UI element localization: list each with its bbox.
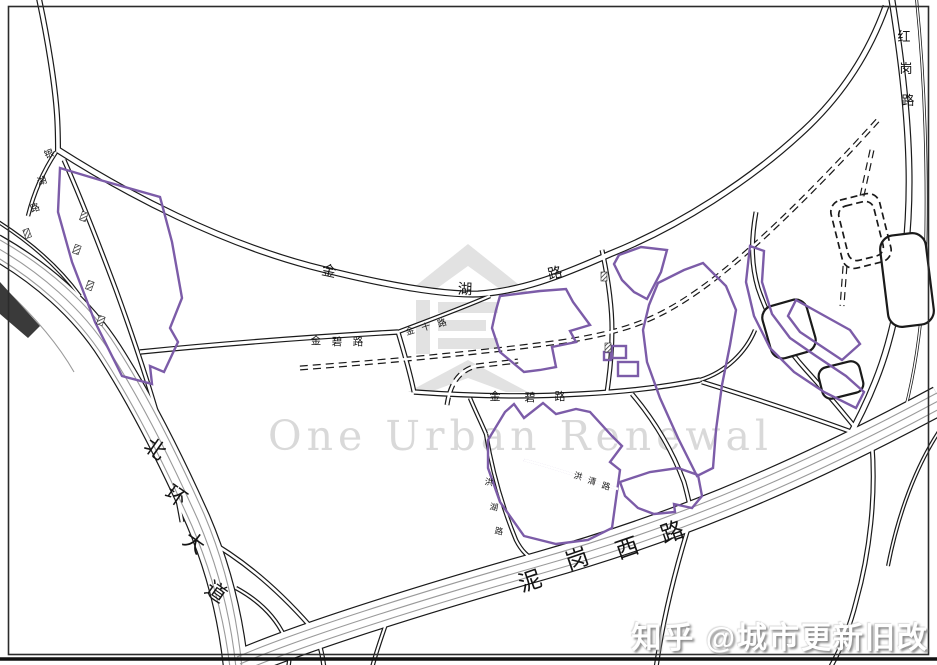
- road-label-jinhu: 金: [320, 262, 338, 282]
- ramp-gore-wedge: [0, 282, 40, 338]
- road-label-yinhu: 湖: [36, 175, 48, 188]
- road-label-hongqing: 清: [587, 475, 598, 487]
- parcel-center-zigzag: [492, 289, 590, 372]
- road-label-jinhu: 湖: [457, 281, 472, 298]
- parcel-small-square: [604, 352, 611, 360]
- road-label-honghu: 湖: [489, 501, 499, 512]
- hatch-tick: [72, 244, 81, 255]
- zhihu-watermark-credit: 知乎 @城市更新旧改: [631, 613, 929, 657]
- road-topleft-vertical: [38, 0, 58, 152]
- planned-road-stub-up: [862, 150, 872, 196]
- road-label-hongqing: 洪: [573, 470, 584, 482]
- parcel-bottom-right: [620, 468, 702, 514]
- map-canvas: One Urban Renewal: [0, 0, 937, 665]
- road-label-jinbi-east: 路: [555, 390, 566, 403]
- house-icon: [438, 338, 498, 349]
- planned-parcel-dashed-inner: [837, 199, 885, 262]
- hatch-tick: [601, 272, 607, 281]
- road-label-honggang: 岗: [899, 61, 912, 76]
- watermark-brand-text: One Urban Renewal: [268, 412, 773, 460]
- road-jinbi-connector: [398, 332, 414, 392]
- hatch-tick: [605, 343, 611, 352]
- road-label-honghu: 洪: [484, 476, 495, 487]
- hatch-tick: [85, 280, 94, 291]
- road-label-honghu: 路: [494, 525, 505, 536]
- parcel-small-square: [612, 346, 626, 358]
- hatch-tick: [23, 228, 32, 239]
- house-icon: [408, 360, 528, 392]
- road-beihuan-avenue: [0, 246, 236, 665]
- road-label-jinbi-west: 路: [353, 335, 364, 348]
- parcel-top-center: [614, 247, 667, 299]
- parcel-small-square: [618, 362, 638, 376]
- road-label-jinbi-east: 碧: [525, 391, 536, 404]
- road-label-jinhu: 路: [546, 263, 564, 283]
- road-label-jinbi-west: 金: [311, 334, 322, 347]
- road-label-honggang: 红: [897, 29, 910, 44]
- road-label-jinbi-east: 金: [490, 389, 501, 403]
- road-beihuan-avenue: [0, 246, 236, 665]
- road-bottom-right-curve: [888, 430, 937, 566]
- road-label-jinbi-west: 碧: [332, 336, 343, 348]
- urban-renewal-planning-map: One Urban Renewal: [0, 0, 937, 665]
- road-label-honggang: 路: [901, 93, 914, 108]
- road-label-hongqing: 路: [601, 480, 612, 492]
